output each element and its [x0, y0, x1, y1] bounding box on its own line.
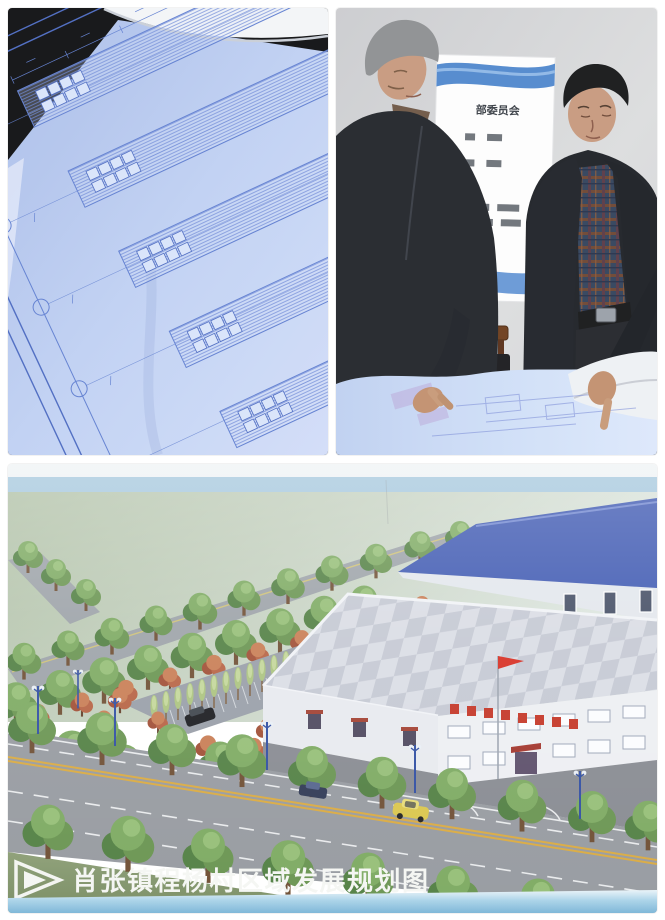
- plan-render-scene: 肖张镇程杨村区域发展规划图: [8, 464, 657, 913]
- panel-blueprint-closeup: [8, 8, 328, 455]
- blueprint-photo-scene: [8, 8, 328, 455]
- haze-overlay: [8, 8, 328, 455]
- meeting-photo-scene: 部委员会: [336, 8, 657, 455]
- photo-collage: 部委员会: [0, 0, 665, 920]
- haze-overlay: [336, 8, 657, 455]
- panel-plan-rendering: 肖张镇程杨村区域发展规划图: [8, 464, 657, 913]
- panel-officials-reviewing: 部委员会: [336, 8, 657, 455]
- haze-overlay: [8, 464, 657, 913]
